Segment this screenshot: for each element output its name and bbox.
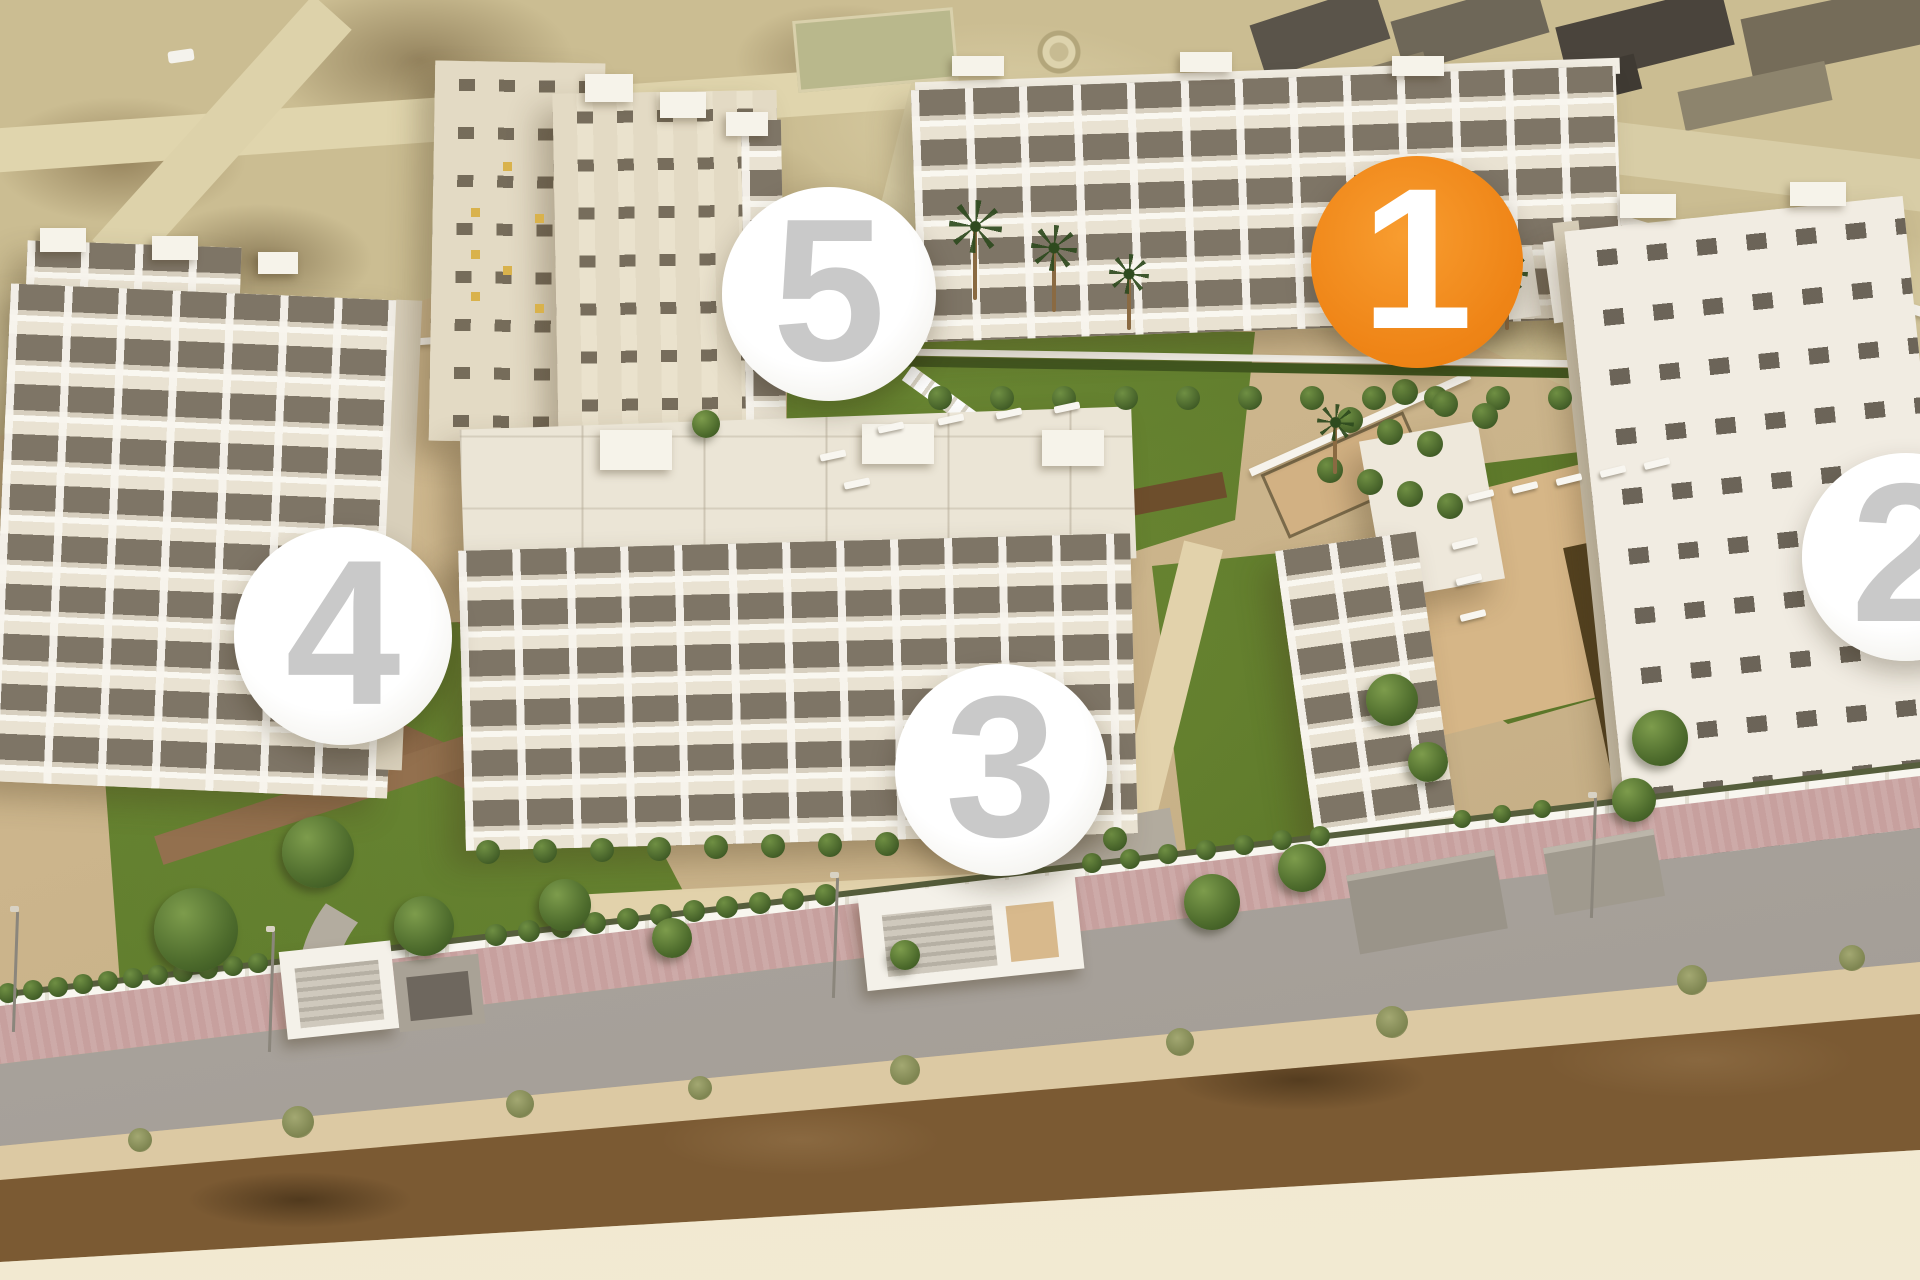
phase-marker-4[interactable]: 4 — [234, 527, 452, 745]
phase-marker-1[interactable]: 1 — [1311, 156, 1523, 368]
phase-marker-number: 5 — [773, 188, 886, 391]
aerial-site-render: 12345 — [0, 0, 1920, 1280]
phase-marker-number: 3 — [945, 665, 1057, 866]
phase-marker-layer: 12345 — [0, 0, 1920, 1280]
phase-marker-number: 2 — [1851, 454, 1920, 652]
phase-marker-number: 1 — [1361, 157, 1473, 358]
phase-marker-2[interactable]: 2 — [1802, 453, 1920, 661]
phase-marker-number: 4 — [285, 528, 400, 735]
phase-marker-3[interactable]: 3 — [895, 664, 1107, 876]
phase-marker-5[interactable]: 5 — [722, 187, 936, 401]
